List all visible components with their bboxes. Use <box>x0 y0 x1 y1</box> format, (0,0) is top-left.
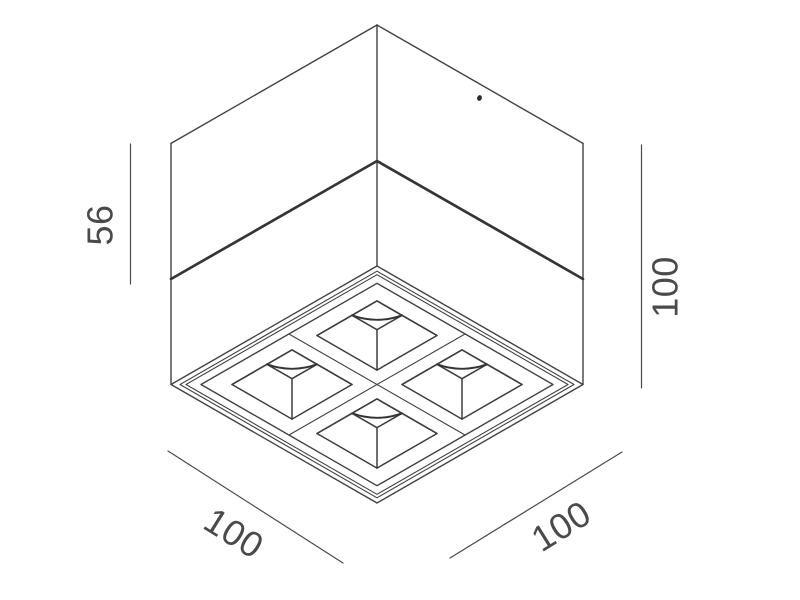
module-aperture-square <box>352 399 402 428</box>
dimension-label-total-height: 100 <box>645 256 686 318</box>
led-module-south <box>317 399 437 468</box>
module-aperture-square <box>267 350 317 379</box>
cube-top-right-edge <box>377 25 583 143</box>
module-reflector-edges <box>402 364 522 419</box>
led-module-north <box>317 301 437 370</box>
module-reflector-edges <box>317 315 437 370</box>
cube-top-left-edge <box>171 25 377 143</box>
mounting-hole <box>476 95 482 102</box>
dimension-label-width-right: 100 <box>524 492 598 559</box>
module-aperture-square <box>352 301 402 330</box>
dimension-label-upper-height: 56 <box>80 204 121 245</box>
drawing-canvas: 56 100 100 100 <box>0 0 800 600</box>
fixture-technical-drawing: 56 100 100 100 <box>0 0 800 600</box>
module-reflector-edges <box>232 364 352 419</box>
module-reflector-edges <box>317 413 437 468</box>
module-aperture-square <box>437 350 487 379</box>
